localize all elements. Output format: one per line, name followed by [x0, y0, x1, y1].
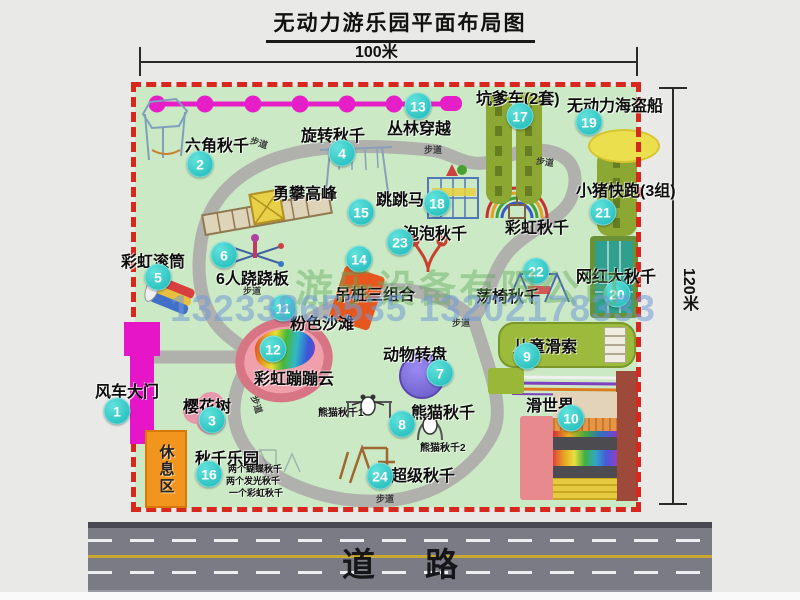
item-badge-1: 1 — [104, 398, 131, 425]
item-badge-3: 3 — [199, 407, 226, 434]
extra-label-1: 熊猫秋千1 — [318, 404, 364, 419]
item-badge-13: 13 — [405, 93, 432, 120]
walkway-label-5: 步道 — [376, 492, 394, 505]
road-margin — [0, 592, 800, 600]
dim-tick-top-right — [636, 47, 638, 76]
item-label-18: 跳跳马 — [376, 186, 424, 210]
page-title: 无动力游乐园平面布局图 — [266, 7, 535, 43]
item-label-11: 粉色沙滩 — [290, 310, 354, 334]
zipline-ladder — [604, 327, 626, 363]
item-label-8: 熊猫秋千 — [411, 399, 475, 423]
item-badge-20: 20 — [604, 281, 631, 308]
slide-world-olive-block — [488, 368, 524, 394]
rest-area-box: 休息区 — [145, 430, 187, 508]
dim-line-right — [672, 88, 674, 505]
item-label-12: 彩虹蹦蹦云 — [254, 365, 334, 389]
slide-world-red-strip — [616, 371, 638, 501]
item-badge-9: 9 — [514, 343, 541, 370]
item-label-24: 超级秋千 — [391, 462, 455, 486]
item-label-22: 荡椅秋千 — [476, 283, 540, 307]
item-badge-23: 23 — [387, 229, 414, 256]
item-label-14: 吊桩三组合 — [335, 281, 415, 305]
item-badge-8: 8 — [389, 411, 416, 438]
item-badge-22: 22 — [523, 258, 550, 285]
item-badge-10: 10 — [558, 405, 585, 432]
dim-tick-right-top — [659, 87, 687, 89]
item-badge-7: 7 — [427, 360, 454, 387]
playground-map: 无动力游乐园平面布局图 100米 120米 — [0, 0, 800, 600]
extra-label-2: 熊猫秋千2 — [420, 439, 466, 454]
slide-world-pink-strip — [520, 416, 554, 500]
dim-tick-top-left — [139, 47, 141, 76]
item-badge-14: 14 — [346, 246, 373, 273]
item-label-1: 风车大门 — [95, 378, 159, 402]
walkway-label-4: 步道 — [452, 316, 470, 329]
item-badge-17: 17 — [507, 103, 534, 130]
road-label: 道路 — [88, 538, 712, 586]
item-label-15: 勇攀高峰 — [273, 180, 337, 204]
item-badge-11: 11 — [270, 295, 297, 322]
pirate-ship-pad — [588, 129, 660, 163]
dim-tick-right-bottom — [659, 503, 687, 505]
item-label-6: 6人跷跷板 — [216, 265, 289, 289]
item-badge-18: 18 — [424, 190, 451, 217]
extra-label-0: 彩虹秋千 — [505, 214, 569, 238]
dim-label-120m: 120米 — [676, 268, 700, 311]
item-badge-6: 6 — [211, 242, 238, 269]
item-badge-21: 21 — [590, 199, 617, 226]
road: 道路 — [88, 522, 712, 594]
item-badge-4: 4 — [329, 140, 356, 167]
item-badge-2: 2 — [187, 151, 214, 178]
item-badge-5: 5 — [145, 264, 172, 291]
extra-label-5: 一个彩虹秋千 — [229, 486, 283, 499]
rest-area-label: 休息区 — [156, 444, 177, 495]
item-label-21: 小猪快跑(3组) — [576, 177, 676, 201]
item-badge-19: 19 — [576, 109, 603, 136]
item-badge-24: 24 — [367, 463, 394, 490]
item-badge-15: 15 — [348, 199, 375, 226]
item-badge-16: 16 — [196, 461, 223, 488]
walkway-label-1: 步道 — [424, 143, 442, 156]
item-badge-12: 12 — [260, 336, 287, 363]
walkway-label-2: 步道 — [535, 154, 555, 169]
